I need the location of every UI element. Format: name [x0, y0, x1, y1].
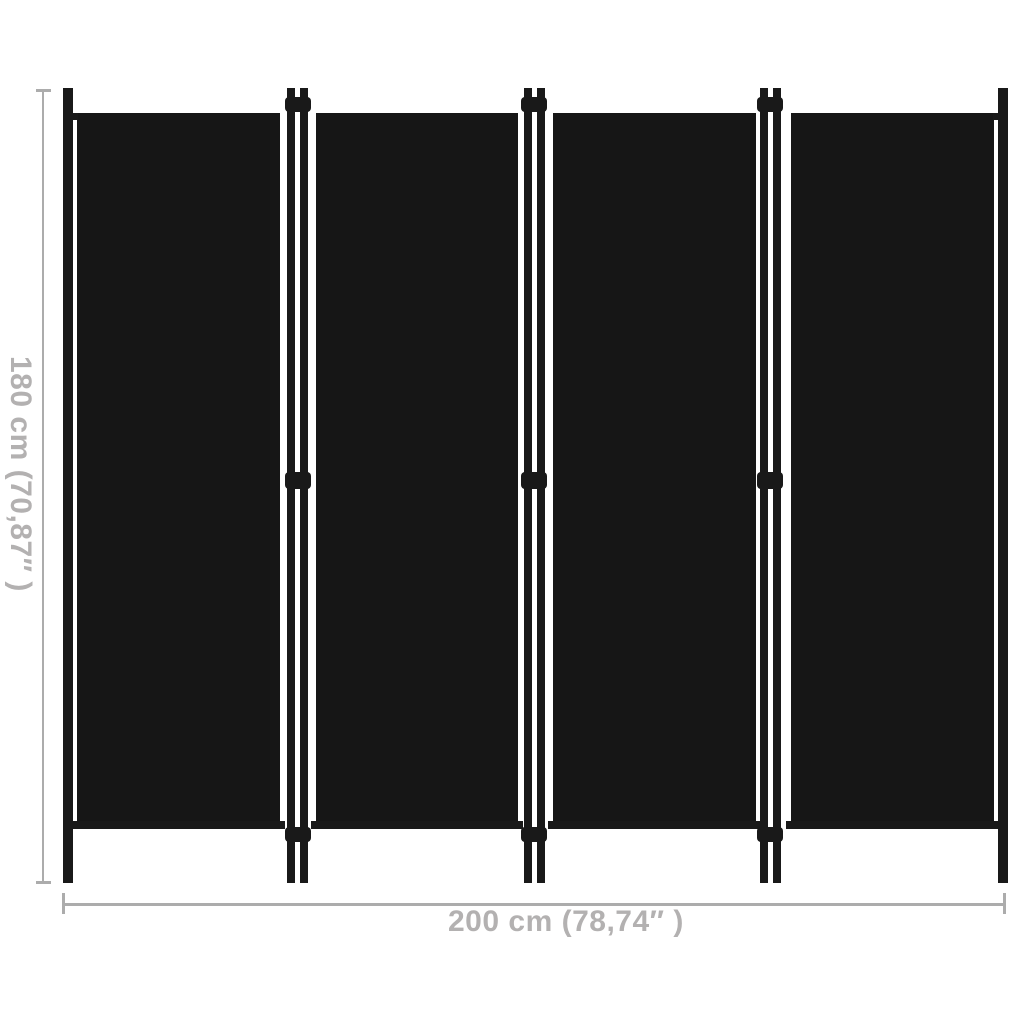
frame-corner-tab — [70, 113, 78, 120]
height-dimension-line — [42, 90, 44, 883]
hinge — [285, 827, 311, 842]
product-dimension-diagram: 180 cm (70,87″ ) 200 cm (78,74″ ) — [0, 0, 1024, 1024]
hinge — [521, 827, 547, 842]
width-dimension-label: 200 cm (78,74″ ) — [448, 905, 684, 939]
room-divider — [0, 0, 1024, 1024]
panel-fabric — [77, 113, 280, 829]
hinge — [757, 827, 783, 842]
width-dimension-cap-right — [1003, 893, 1006, 914]
panel-fabric — [316, 113, 518, 829]
hinge — [521, 472, 547, 489]
height-dimension-cap-top — [36, 89, 51, 92]
panel-bottom-rail — [786, 821, 999, 829]
hinge — [285, 97, 311, 112]
hinge — [757, 472, 783, 489]
hinge — [285, 472, 311, 489]
frame-pole — [63, 88, 73, 883]
panel-fabric — [553, 113, 756, 829]
hinge — [757, 97, 783, 112]
height-dimension-label: 180 cm (70,87″ ) — [3, 356, 37, 592]
panel-bottom-rail — [72, 821, 285, 829]
panel-bottom-rail — [548, 821, 761, 829]
width-dimension-cap-left — [62, 893, 65, 914]
frame-corner-tab — [993, 113, 1001, 120]
panel-bottom-rail — [311, 821, 523, 829]
panel-fabric — [791, 113, 994, 829]
hinge — [521, 97, 547, 112]
height-dimension-cap-bottom — [36, 881, 51, 884]
frame-pole — [998, 88, 1008, 883]
